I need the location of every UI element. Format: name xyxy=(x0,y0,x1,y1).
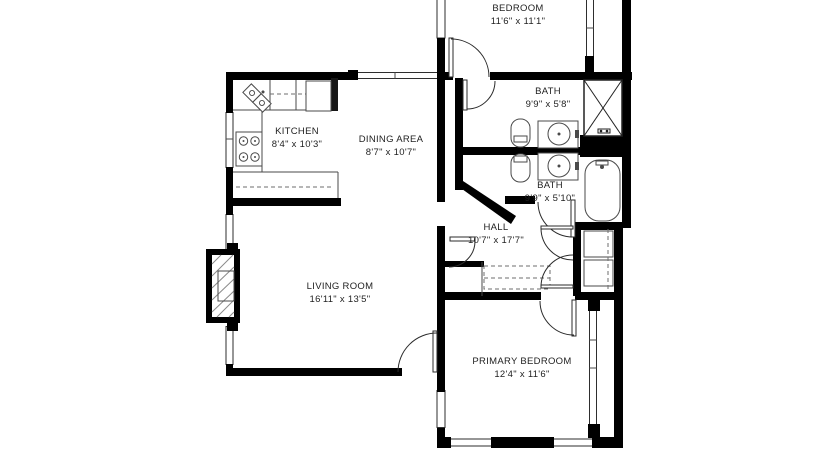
window xyxy=(437,391,445,428)
bath-upper-door xyxy=(463,80,495,110)
room-dims: 11'6" x 11'1" xyxy=(491,15,546,28)
window xyxy=(554,439,593,446)
room-name: LIVING ROOM xyxy=(307,280,374,293)
window xyxy=(226,113,233,168)
room-label-bath-lower: BATH 9'9" x 5'10" xyxy=(525,179,575,205)
room-dims: 8'4" x 10'3" xyxy=(272,138,322,151)
bath-lower-door xyxy=(538,200,575,237)
room-name: KITCHEN xyxy=(272,125,322,138)
toilet-icon xyxy=(511,154,530,182)
room-dims: 8'7" x 10'7" xyxy=(359,146,424,159)
room-dims: 9'9" x 5'8" xyxy=(526,98,571,111)
floor-plan: BEDROOM 11'6" x 11'1" KITCHEN 8'4" x 10'… xyxy=(0,0,835,467)
room-name: BATH xyxy=(525,179,575,192)
bathtub-icon xyxy=(585,160,620,221)
room-name: HALL xyxy=(468,221,524,234)
hall-closet-double-door xyxy=(541,226,573,288)
vanity-sink-icon xyxy=(538,121,579,148)
vanity-sink-icon xyxy=(538,153,579,180)
fireplace-icon xyxy=(206,249,240,323)
room-label-bedroom: BEDROOM 11'6" x 11'1" xyxy=(491,2,546,28)
hall-shelf-closet xyxy=(482,262,550,296)
room-label-living-room: LIVING ROOM 16'11" x 13'5" xyxy=(307,280,374,306)
refrigerator-icon xyxy=(306,81,331,111)
room-name: PRIMARY BEDROOM xyxy=(472,355,571,368)
room-name: DINING AREA xyxy=(359,133,424,146)
entry-door xyxy=(398,331,437,372)
room-label-bath-upper: BATH 9'9" x 5'8" xyxy=(526,85,571,111)
room-dims: 16'11" x 13'5" xyxy=(307,293,374,306)
room-label-hall: HALL 10'7" x 17'7" xyxy=(468,221,524,247)
room-label-primary-bedroom: PRIMARY BEDROOM 12'4" x 11'6" xyxy=(472,355,571,381)
room-dims: 12'4" x 11'6" xyxy=(472,368,571,381)
room-name: BEDROOM xyxy=(491,2,546,15)
kitchen-sink-icon xyxy=(243,81,274,112)
range-icon xyxy=(236,132,262,166)
window xyxy=(437,0,445,38)
room-dims: 10'7" x 17'7" xyxy=(468,234,524,247)
toilet-icon xyxy=(511,119,530,147)
room-dims: 9'9" x 5'10" xyxy=(525,192,575,205)
window xyxy=(587,0,594,58)
hall-storage-closet xyxy=(584,229,613,290)
room-name: BATH xyxy=(526,85,571,98)
floor-plan-canvas xyxy=(0,0,835,467)
shower-icon xyxy=(584,80,622,136)
room-label-dining-area: DINING AREA 8'7" x 10'7" xyxy=(359,133,424,159)
bedroom-door xyxy=(449,38,489,77)
room-label-kitchen: KITCHEN 8'4" x 10'3" xyxy=(272,125,322,151)
primary-bedroom-door xyxy=(540,300,576,336)
window xyxy=(451,439,492,446)
window xyxy=(226,327,233,365)
